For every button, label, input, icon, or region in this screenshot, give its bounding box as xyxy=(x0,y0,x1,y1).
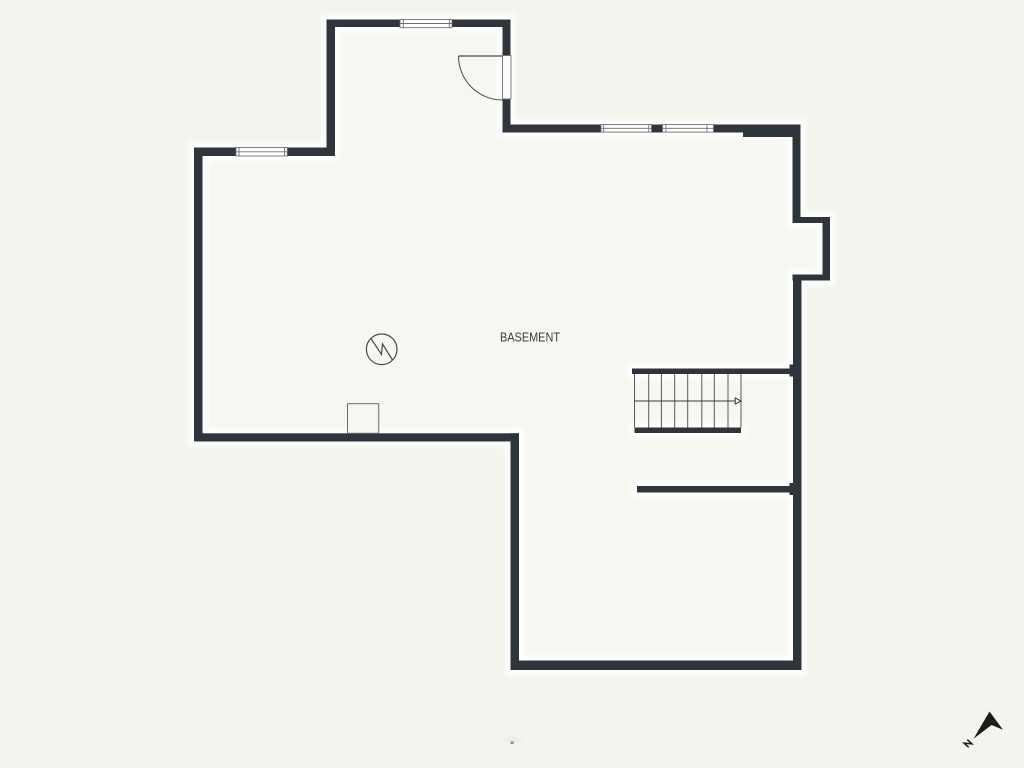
svg-text:BASEMENT: BASEMENT xyxy=(500,330,560,345)
